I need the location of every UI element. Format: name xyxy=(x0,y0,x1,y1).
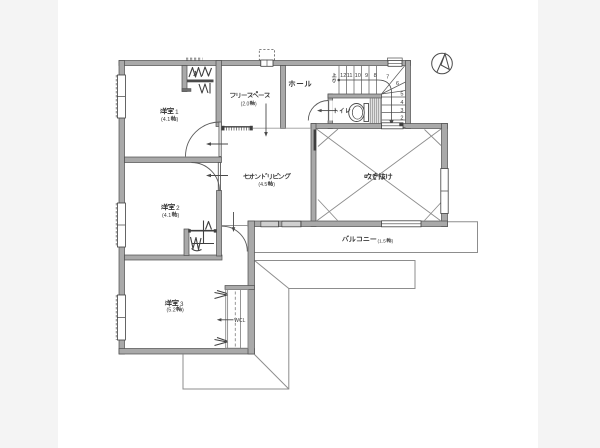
svg-text:7: 7 xyxy=(386,75,389,81)
svg-text:(4.1: (4.1 xyxy=(161,117,170,123)
svg-text:5: 5 xyxy=(400,91,403,97)
svg-text:12: 12 xyxy=(340,73,346,79)
svg-text:(1.5: (1.5 xyxy=(378,238,387,244)
svg-text:11: 11 xyxy=(347,73,353,79)
svg-text:4: 4 xyxy=(400,100,403,106)
svg-text:(4.5: (4.5 xyxy=(258,182,267,188)
svg-text:WCL: WCL xyxy=(234,318,245,324)
svg-text:3: 3 xyxy=(400,108,403,114)
svg-text:(2.0: (2.0 xyxy=(241,102,250,108)
svg-text:): ) xyxy=(182,308,184,314)
svg-text:1: 1 xyxy=(175,109,179,116)
svg-text:): ) xyxy=(178,213,180,219)
svg-text:10: 10 xyxy=(355,73,361,79)
svg-text:8: 8 xyxy=(374,73,377,79)
svg-text:9: 9 xyxy=(365,73,368,79)
svg-text:2: 2 xyxy=(176,205,180,212)
svg-text:(4.1: (4.1 xyxy=(162,213,171,219)
svg-text:): ) xyxy=(273,182,275,188)
svg-text:): ) xyxy=(177,117,179,123)
svg-text:(5.2: (5.2 xyxy=(167,308,176,314)
svg-text:2: 2 xyxy=(400,115,403,121)
svg-text:6: 6 xyxy=(396,81,399,87)
